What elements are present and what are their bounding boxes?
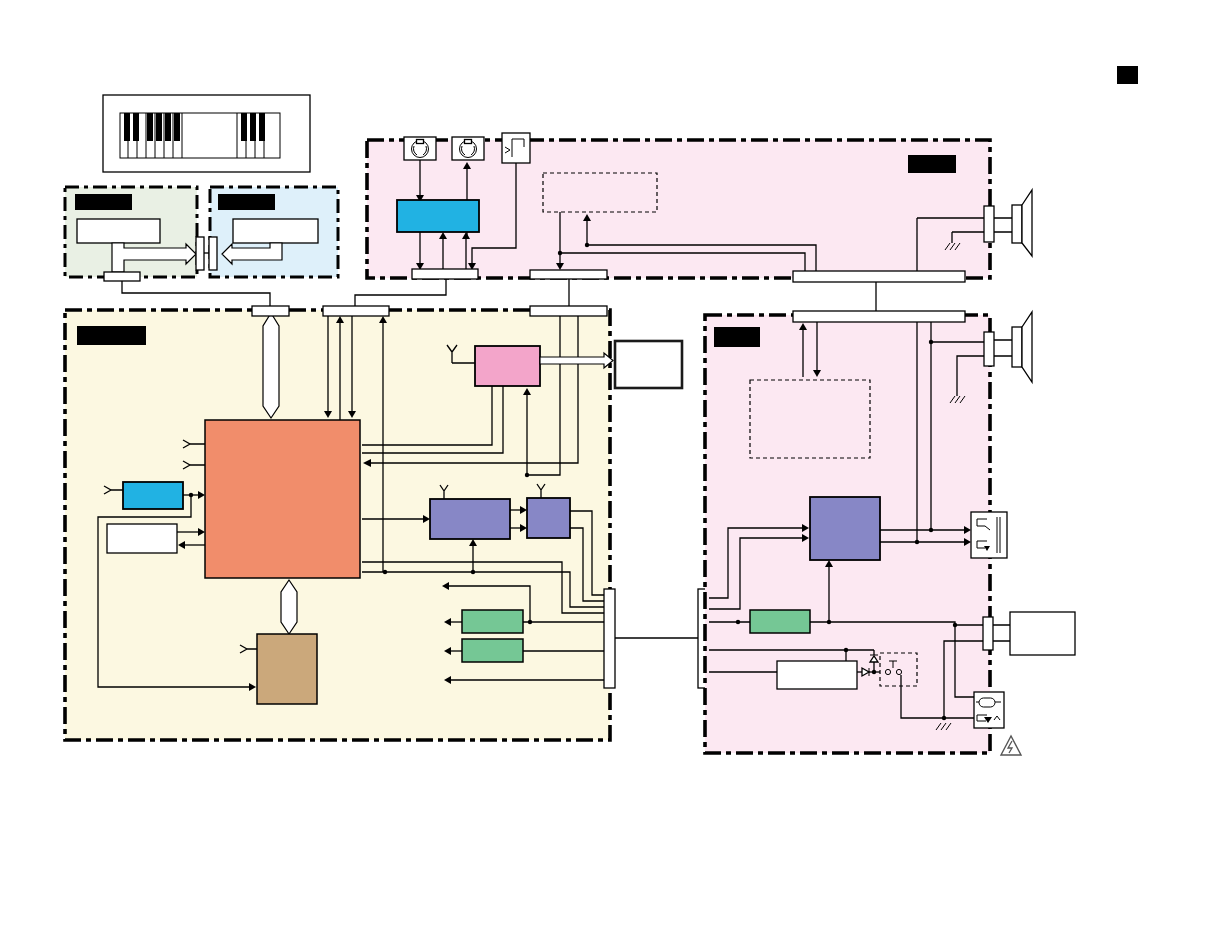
connector-bar	[793, 271, 965, 282]
cable	[993, 625, 1010, 641]
midi-din-connector-icon	[404, 137, 436, 160]
main-board-panel	[65, 310, 613, 740]
power-inlet-icon	[974, 692, 1004, 728]
connector-bar	[793, 311, 965, 322]
redacted-label	[75, 194, 132, 210]
board-to-board-connector	[196, 237, 217, 270]
connector-bar	[252, 306, 289, 316]
redacted-label	[714, 327, 760, 347]
ic-block-purple	[430, 499, 510, 539]
connector-bar	[604, 589, 615, 688]
ic-block-main-orange	[205, 420, 360, 578]
ic-block-green	[462, 610, 523, 633]
connector-bar	[323, 306, 389, 316]
ic-block-green	[462, 639, 523, 662]
bus-arrow	[281, 580, 297, 634]
redacted-label	[218, 194, 275, 210]
ic-block-blue	[397, 200, 479, 232]
cable	[355, 279, 446, 306]
top-pink-panel	[367, 133, 990, 282]
ic-block-purple	[527, 498, 570, 538]
ic-block-pink	[475, 346, 540, 386]
ic-block-green	[750, 610, 810, 633]
bus-arrow	[263, 313, 279, 418]
headphone-jack-icon	[971, 512, 1007, 558]
block-diagram-page	[0, 0, 1213, 930]
connector-bar	[412, 269, 478, 279]
ic-block-blue	[123, 482, 183, 509]
keyboard-icon	[103, 95, 310, 172]
sub-block	[77, 219, 160, 243]
connector-bar	[104, 272, 140, 281]
ic-block-amp-purple	[810, 497, 880, 560]
connector-bar	[983, 617, 993, 650]
sub-block	[233, 219, 318, 243]
sub-block	[107, 524, 177, 553]
ic-block-brown	[257, 634, 317, 704]
redacted-label	[77, 326, 146, 345]
display-block	[615, 341, 682, 388]
midi-din-connector-icon	[452, 137, 484, 160]
connector-bar	[530, 306, 607, 316]
pedal-jack-icon	[502, 133, 530, 163]
diagram-canvas	[0, 0, 1213, 930]
black-square-marker	[1117, 66, 1138, 84]
warning-triangle-icon	[1001, 736, 1021, 755]
blue-board-panel	[210, 187, 338, 277]
ac-adaptor-block	[1010, 612, 1075, 655]
keyboard-cable	[122, 280, 270, 306]
redacted-label	[908, 155, 956, 173]
green-board-panel	[65, 187, 197, 277]
amp-power-panel	[705, 315, 990, 753]
power-supply-block	[777, 661, 857, 689]
connector-bar	[530, 270, 607, 279]
